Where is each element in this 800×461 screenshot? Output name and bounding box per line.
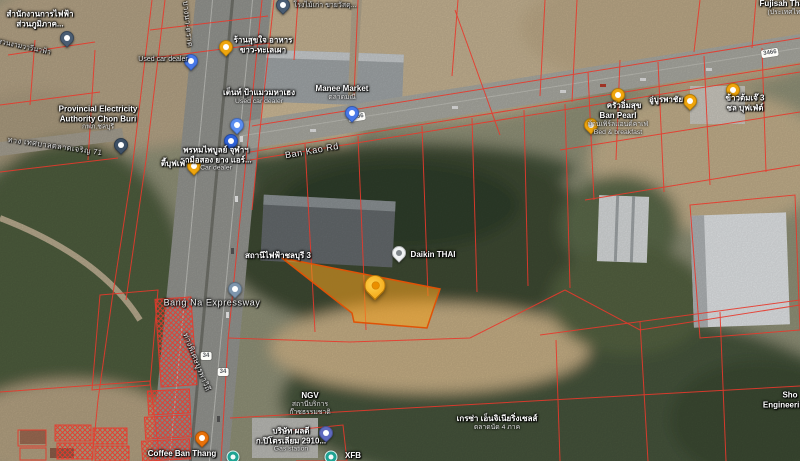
label-line: Bang Na Expressway <box>164 298 261 309</box>
expressway-pin[interactable] <box>228 282 242 296</box>
label-ngv[interactable]: NGVสถานีบริการก๊าซธรรมชาติ <box>289 391 330 417</box>
overlay-layer: สำนักงานการไฟฟ้าส่วนภูมิภาค...สวนงามวารี… <box>0 0 800 461</box>
material-shop-pin[interactable] <box>276 0 290 12</box>
landmark-icon <box>57 28 77 48</box>
label-khao-tom-je3[interactable]: ข้าวต้มเจ๊ 3ชล บุฟเฟ่ต์ <box>725 93 764 112</box>
label-line: NGV <box>289 391 330 401</box>
place-icon <box>225 279 245 299</box>
label-pea-office[interactable]: สำนักงานการไฟฟ้าส่วนภูมิภาค... <box>6 9 73 28</box>
label-old-wood-shop[interactable]: โรงไม้เก่า ขายวัสดุ... <box>294 2 357 10</box>
label-line: Used car dealer <box>138 56 187 64</box>
label-line: Authority Chon Buri <box>59 114 138 124</box>
label-subline: Bed & breakfast <box>588 129 648 137</box>
label-line: Engineering C <box>763 400 800 410</box>
store-icon <box>325 451 338 461</box>
market-pin[interactable] <box>345 106 359 120</box>
label-subline: กฟภ.ชลบุรี <box>59 124 138 132</box>
label-xfb[interactable]: XFB <box>345 451 361 461</box>
label-daikin[interactable]: Daikin THAI <box>411 250 456 260</box>
label-subline: สถานีบริการ <box>289 401 330 409</box>
label-manee-market[interactable]: Manee Marketตลาดมณี <box>316 84 369 102</box>
label-line: Daikin THAI <box>411 250 456 260</box>
label-area-northwest: สวนงามวารีนาฟ้า <box>0 38 51 57</box>
label-line: รถมือสอง ยาง แอร์... <box>180 155 251 165</box>
label-engineering-shop[interactable]: ShoEngineering C <box>763 390 800 409</box>
label-subline: ตลาดมณี <box>316 94 369 102</box>
label-bangna-expressway: Bang Na Expressway <box>164 298 261 309</box>
car-icon <box>227 115 247 135</box>
route-badge: 34 <box>218 368 229 376</box>
restaurant-pin[interactable] <box>219 40 233 54</box>
government-office-pin[interactable] <box>60 31 74 45</box>
label-subline: ก๊าซธรรมชาติ <box>289 409 330 417</box>
store-icon <box>227 451 240 461</box>
label-line: สวนงามวารีนาฟ้า <box>0 38 51 57</box>
label-line: XFB <box>345 451 361 461</box>
label-subline: บ้านเพิร์ลแอนด์คาเฟ่ <box>588 121 648 129</box>
label-line: Coffee Ban Thang <box>148 449 216 459</box>
daikin-pin[interactable] <box>392 246 406 260</box>
location-marker-icon <box>360 271 390 301</box>
label-tent-pamaew[interactable]: เต็นท์ ป้าแมวมหาเฮงUsed car dealer <box>223 88 295 106</box>
label-line: ร้านสุขใจ อาหาร <box>234 35 293 45</box>
label-line: ข้าวต้มเจ๊ 3 <box>725 93 764 103</box>
label-restaurant-sukjai[interactable]: ร้านสุขใจ อาหารขาว-ทะเลเผา <box>234 35 293 54</box>
label-line: ส่วนภูมิภาค... <box>6 19 73 29</box>
label-line: โรงไม้เก่า ขายวัสดุ... <box>294 2 357 10</box>
office-building-icon <box>111 135 131 155</box>
label-line: Provincial Electricity <box>59 104 138 114</box>
used-car-pin-1[interactable] <box>230 118 244 132</box>
label-line: ทาง เทศบาลตลาดเจริญ 71 <box>7 135 103 157</box>
restaurant-pin-3[interactable] <box>683 94 697 108</box>
label-coffee-ban-thang[interactable]: Coffee Ban Thang <box>148 449 216 459</box>
label-line: ตี้บุฟเฟ่ <box>161 159 185 169</box>
label-line: Ban Pearl <box>588 111 648 121</box>
label-line: เกรซ่า เอ็นจิเนียริ่งเซลส์ <box>457 414 538 424</box>
label-line: Fujisah Thail <box>760 0 800 9</box>
label-burapha-expwy: ทางพิเศษบูรพาวิถี <box>181 332 213 393</box>
label-subline: (ประเทศไท <box>760 9 800 17</box>
label-garage-burapha[interactable]: อู่บูรพาชัย <box>649 95 683 105</box>
dealer-pin-teal-1[interactable] <box>227 451 240 461</box>
label-ban-pearl[interactable]: Ban Pearlบ้านเพิร์ลแอนด์คาเฟ่Bed & break… <box>588 111 648 137</box>
label-line: Manee Market <box>316 84 369 94</box>
label-line: บริษัท ผลดี <box>256 426 326 436</box>
label-ban-kao-rd: Ban Kao Rd <box>284 141 340 161</box>
coffee-icon <box>192 428 212 448</box>
label-line: Ban Kao Rd <box>284 141 340 161</box>
route-badge: 3466 <box>761 48 779 59</box>
label-tee-buffet[interactable]: ตี้บุฟเฟ่ <box>161 159 185 169</box>
label-line: สำนักงานการไฟฟ้า <box>6 9 73 19</box>
label-line: ทางพิเศษบูรพาวิถี <box>181 332 213 393</box>
property-marker[interactable] <box>365 275 386 296</box>
label-line: บางนา-ตราด <box>181 0 195 47</box>
label-kreza-engineering[interactable]: เกรซ่า เอ็นจิเนียริ่งเซลส์ตลาดนัด 4 ภาค <box>457 414 538 432</box>
label-poldee-gas[interactable]: บริษัท ผลดีก.ปิโตรเลียม 2910...Gas stati… <box>256 426 326 453</box>
shopping-icon <box>342 103 362 123</box>
shop-icon <box>273 0 293 15</box>
label-line: ครัวอิ่มสุข <box>607 101 642 111</box>
label-line: ขาว-ทะเลเผา <box>234 45 293 55</box>
label-line: Sho <box>763 390 800 400</box>
map-canvas[interactable]: สำนักงานการไฟฟ้าส่วนภูมิภาค...สวนงามวารี… <box>0 0 800 461</box>
label-line: สถานีไฟฟ้าชลบุรี 3 <box>245 251 311 261</box>
place-dot-icon <box>389 243 409 263</box>
label-pea-chonburi[interactable]: Provincial ElectricityAuthority Chon Bur… <box>59 104 138 131</box>
label-used-car-dealer[interactable]: Used car dealer <box>138 56 187 64</box>
label-subline: Used car dealer <box>223 98 295 106</box>
label-subline: ตลาดนัด 4 ภาค <box>457 424 538 432</box>
label-subline: Gas station <box>256 446 326 454</box>
label-talad-charoen-rd: ทาง เทศบาลตลาดเจริญ 71 <box>7 135 103 157</box>
label-fujisah[interactable]: Fujisah Thail(ประเทศไท <box>760 0 800 17</box>
restaurant-icon <box>680 91 700 111</box>
route-badge: 34 <box>201 352 212 360</box>
label-subline: Car dealer <box>180 165 251 173</box>
label-bangna-trat: บางนา-ตราด <box>181 0 195 47</box>
label-line: ก.ปิโตรเลียม 2910... <box>256 436 326 446</box>
label-chonburi-substation[interactable]: สถานีไฟฟ้าชลบุรี 3 <box>245 251 311 261</box>
cafe-pin[interactable] <box>195 431 209 445</box>
label-krua-imsuk[interactable]: ครัวอิ่มสุข <box>607 101 642 111</box>
restaurant-pin-2[interactable] <box>611 88 625 102</box>
label-chula-used-cars[interactable]: พรหมไพบูลย์ จุฬาฯรถมือสอง ยาง แอร์...Car… <box>180 145 251 172</box>
label-line: เต็นท์ ป้าแมวมหาเฮง <box>223 88 295 98</box>
label-line: ชล บุฟเฟ่ต์ <box>725 103 764 113</box>
label-line: พรหมไพบูลย์ จุฬาฯ <box>180 145 251 155</box>
dealer-pin-teal-2[interactable] <box>325 451 338 461</box>
electricity-authority-pin[interactable] <box>114 138 128 152</box>
label-line: อู่บูรพาชัย <box>649 95 683 105</box>
